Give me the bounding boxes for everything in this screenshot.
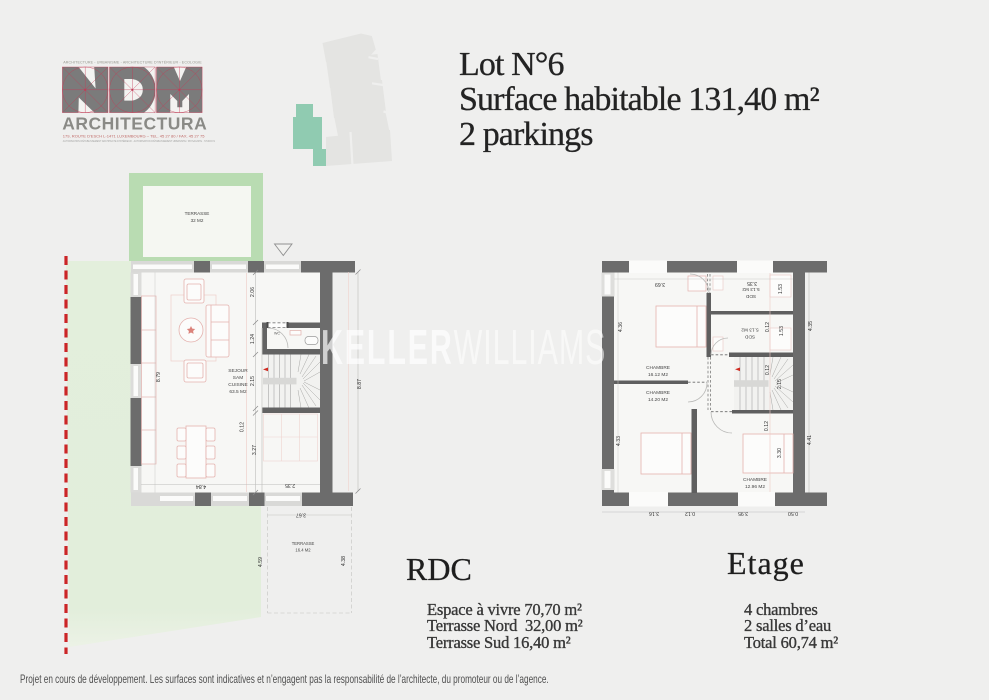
- svg-text:5.13 M2: 5.13 M2: [741, 327, 759, 333]
- svg-text:CUISINE: CUISINE: [228, 382, 247, 388]
- svg-text:4.35: 4.35: [808, 321, 814, 331]
- svg-text:3.16: 3.16: [649, 510, 659, 516]
- svg-text:3.69: 3.69: [655, 281, 665, 287]
- svg-text:0.12: 0.12: [765, 365, 771, 375]
- svg-text:SDD: SDD: [745, 293, 756, 299]
- svg-text:ARCHITECTURA: ARCHITECTURA: [62, 114, 207, 134]
- svg-text:2.35: 2.35: [285, 482, 295, 488]
- svg-text:4.84: 4.84: [196, 483, 206, 489]
- svg-text:3.95: 3.95: [738, 510, 748, 516]
- svg-text:16.12 M2: 16.12 M2: [648, 372, 668, 378]
- svg-text:ARCHITECTURE - URBANISME - ARC: ARCHITECTURE - URBANISME - ARCHITECTURE …: [63, 60, 202, 65]
- svg-text:63.5 M2: 63.5 M2: [229, 389, 247, 395]
- svg-text:3.35: 3.35: [747, 280, 757, 286]
- svg-text:1.53: 1.53: [779, 326, 785, 336]
- svg-text:4.59: 4.59: [258, 557, 264, 567]
- svg-text:12.96 M2: 12.96 M2: [745, 484, 765, 490]
- svg-text:2.15: 2.15: [777, 379, 783, 389]
- svg-text:1.53: 1.53: [778, 284, 784, 294]
- svg-text:WC: WC: [274, 332, 280, 336]
- svg-text:32 M2: 32 M2: [191, 218, 204, 223]
- svg-text:TERRASSE: TERRASSE: [185, 211, 210, 216]
- svg-text:0.12: 0.12: [765, 322, 771, 332]
- svg-text:179, ROUTE D'ESCH L-1471 LUXEM: 179, ROUTE D'ESCH L-1471 LUXEMBOURG – TE…: [63, 134, 205, 139]
- svg-text:16.4 M2: 16.4 M2: [295, 548, 311, 553]
- svg-text:CHAMBRE: CHAMBRE: [743, 477, 767, 483]
- svg-text:2.15: 2.15: [250, 376, 256, 386]
- svg-text:3.27: 3.27: [252, 445, 258, 455]
- svg-text:0.50: 0.50: [788, 510, 798, 516]
- svg-text:8.87: 8.87: [357, 379, 363, 389]
- svg-text:CHAMBRE: CHAMBRE: [646, 390, 670, 396]
- svg-text:4.36: 4.36: [618, 322, 624, 332]
- svg-text:0.12: 0.12: [685, 510, 695, 516]
- svg-text:TERRASSE: TERRASSE: [292, 541, 315, 546]
- svg-text:0.12: 0.12: [240, 422, 246, 432]
- svg-text:4.38: 4.38: [341, 556, 347, 566]
- svg-text:4.41: 4.41: [807, 435, 813, 445]
- svg-text:SDD: SDD: [744, 334, 755, 340]
- svg-text:4.33: 4.33: [616, 436, 622, 446]
- svg-text:3.30: 3.30: [777, 448, 783, 458]
- svg-text:3.67: 3.67: [296, 512, 306, 518]
- svg-text:2.06: 2.06: [250, 287, 256, 297]
- svg-text:SAM: SAM: [233, 375, 243, 381]
- svg-text:1.24: 1.24: [250, 334, 256, 344]
- svg-text:CHAMBRE: CHAMBRE: [646, 365, 670, 371]
- svg-text:14.20 M2: 14.20 M2: [648, 397, 668, 403]
- svg-text:8.79: 8.79: [156, 372, 162, 382]
- svg-text:AUTORISATION D'ÉTABLISSEMENT A: AUTORISATION D'ÉTABLISSEMENT ARCHITECTE …: [63, 140, 215, 143]
- svg-text:SEJOUR: SEJOUR: [228, 368, 248, 374]
- svg-text:0.12: 0.12: [764, 421, 770, 431]
